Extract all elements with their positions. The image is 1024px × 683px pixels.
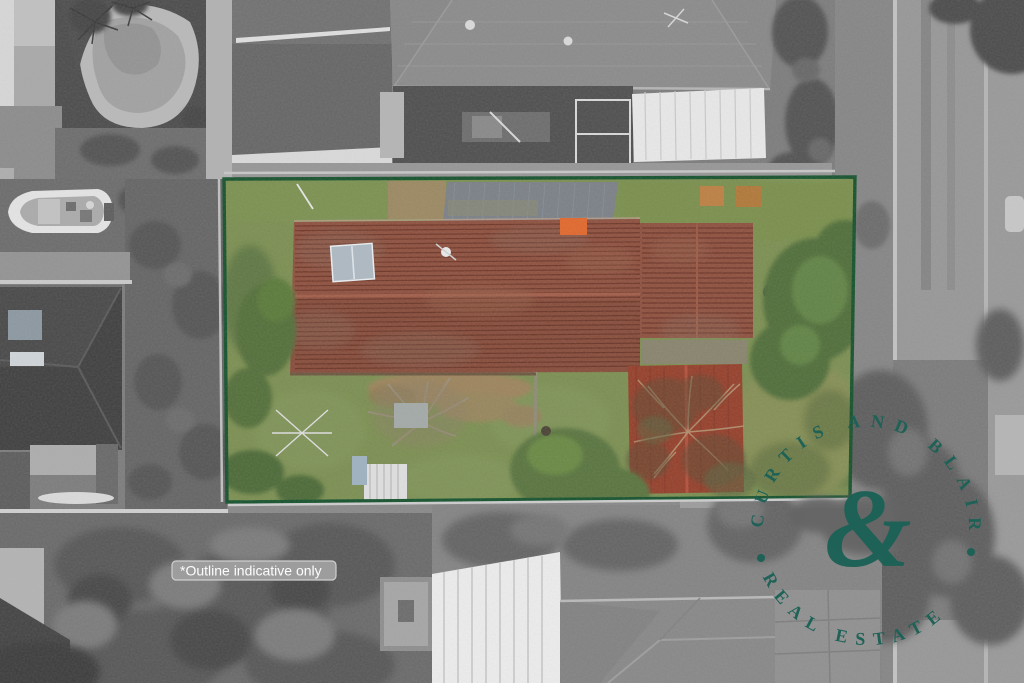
svg-text:&: &	[824, 467, 911, 591]
svg-text:*Outline indicative only: *Outline indicative only	[180, 563, 322, 579]
